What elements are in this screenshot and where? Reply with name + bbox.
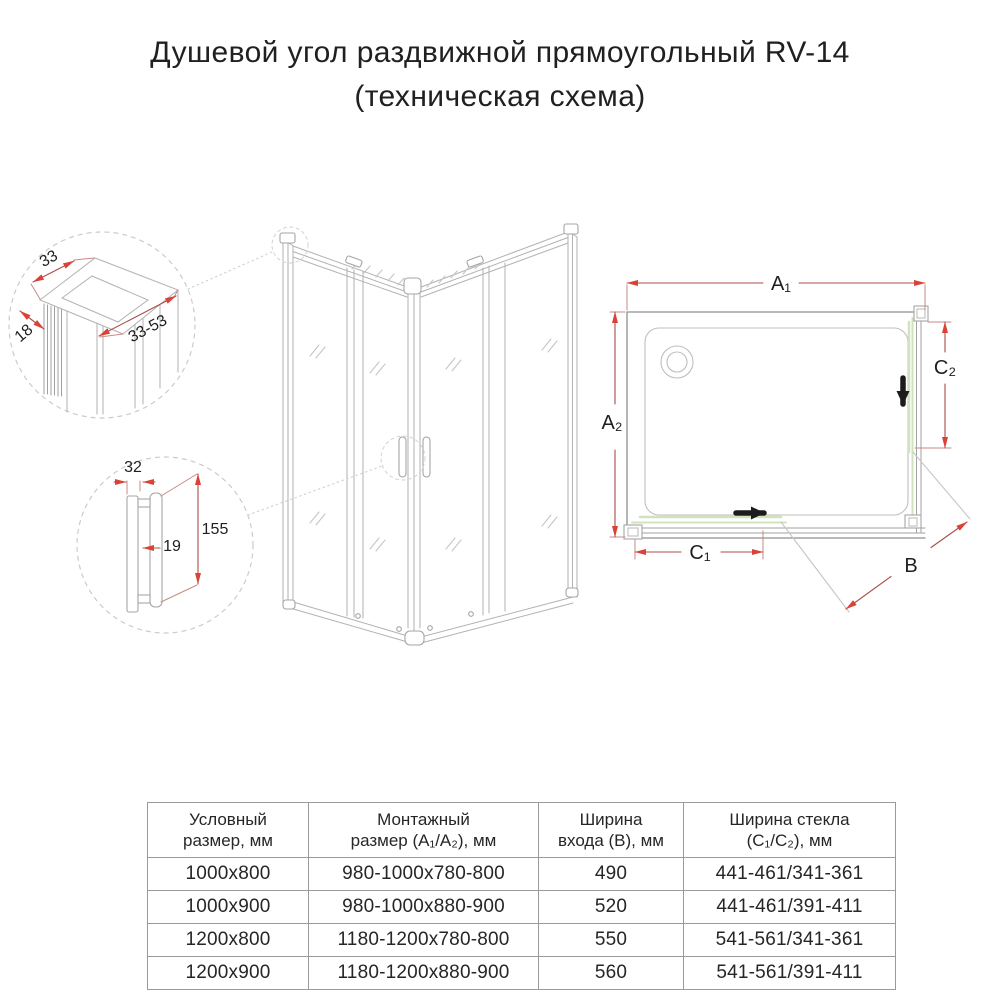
cell-entry-width: 560 [539,957,684,990]
right-post-cap [564,224,578,234]
cell-conditional-size: 1200x800 [148,924,309,957]
header-mounting-size: Монтажный размер (A₁/A₂), мм [309,803,539,858]
cell-mounting-size: 1180-1200x780-800 [309,924,539,957]
left-post-cap [280,233,295,243]
dim-label-handle-height: 155 [202,521,229,538]
cell-conditional-size: 1000x800 [148,858,309,891]
header-glass-width: Ширина стекла (C₁/C₂), мм [684,803,896,858]
table-header-row: Условный размер, мм Монтажный размер (A₁… [148,803,896,858]
handle-grip-bar [150,493,162,607]
enclosure-3d-view [188,224,578,645]
wall-bracket-bottom-left [624,525,642,539]
page-title: Душевой угол раздвижной прямоугольный RV… [0,31,1000,119]
table-row: 1000x900 980-1000x880-900 520 441-461/39… [148,891,896,924]
bottom-rails [290,597,573,643]
cell-conditional-size: 1200x900 [148,957,309,990]
dim-line-b-upper [931,522,967,548]
bottom-roller [428,626,433,631]
cell-glass-width: 441-461/341-361 [684,858,896,891]
bottom-roller [356,614,361,619]
frame-posts [283,231,577,630]
header-conditional-size: Условный размер, мм [148,803,309,858]
corner-foot [405,631,424,645]
dim-label-b: B [904,555,917,577]
door-handle-right [423,437,430,477]
door-handle-left [399,437,406,477]
cell-entry-width: 520 [539,891,684,924]
drain-circle-inner [667,352,687,372]
dim-label-c2: C₂ [934,357,956,379]
dim-line-b-lower [846,577,891,610]
table-row: 1000x800 980-1000x780-800 490 441-461/34… [148,858,896,891]
wall-hatch-lines [44,304,62,396]
size-specification-table: Условный размер, мм Монтажный размер (A₁… [147,802,896,990]
cell-glass-width: 441-461/391-411 [684,891,896,924]
top-rails [293,232,568,297]
handle-detail-callout: 32 155 19 [77,457,253,633]
dim-label-a2: A₂ [601,412,622,434]
cell-mounting-size: 1180-1200x880-900 [309,957,539,990]
right-post-foot [566,588,578,597]
bottom-roller [469,612,474,617]
handle-bottom-arm [138,595,150,603]
cell-mounting-size: 980-1000x880-900 [309,891,539,924]
cell-conditional-size: 1000x900 [148,891,309,924]
bottom-roller [397,627,402,632]
cell-entry-width: 490 [539,858,684,891]
header-entry-width: Ширина входа (B), мм [539,803,684,858]
plan-walls [627,312,925,538]
technical-diagram: 33 18 33-53 32 155 19 [0,120,1000,800]
dim-ext-c2 [915,322,951,448]
cell-entry-width: 550 [539,924,684,957]
dim-label-profile-width: 33 [37,247,61,271]
door-hanger-right [466,255,483,267]
handle-mount-plate [127,496,138,612]
callout-leader-lines [188,252,382,515]
wall-bracket-top-right [914,306,928,321]
dim-label-profile-depth: 18 [12,321,37,346]
handle-top-arm [138,499,150,507]
left-post-foot [283,600,295,609]
cell-mounting-size: 980-1000x780-800 [309,858,539,891]
cell-glass-width: 541-561/341-361 [684,924,896,957]
door-tracks [627,310,925,533]
table-row: 1200x800 1180-1200x780-800 550 541-561/3… [148,924,896,957]
drain-circle [661,346,693,378]
table-row: 1200x900 1180-1200x880-900 560 541-561/3… [148,957,896,990]
profile-detail-callout: 33 18 33-53 [9,232,195,418]
page-title-line2: (техническая схема) [0,75,1000,119]
cell-glass-width: 541-561/391-411 [684,957,896,990]
dim-label-c1: C₁ [689,542,710,564]
plan-view: A₁ A₂ C₂ C₁ B [601,273,970,612]
dim-label-handle-depth: 32 [124,459,142,476]
corner-cap [404,278,421,294]
page-title-line1: Душевой угол раздвижной прямоугольный RV… [0,31,1000,75]
profile-reference-circle [272,227,308,263]
dim-label-handle-thickness: 19 [163,538,181,555]
dim-label-a1: A₁ [771,273,791,295]
